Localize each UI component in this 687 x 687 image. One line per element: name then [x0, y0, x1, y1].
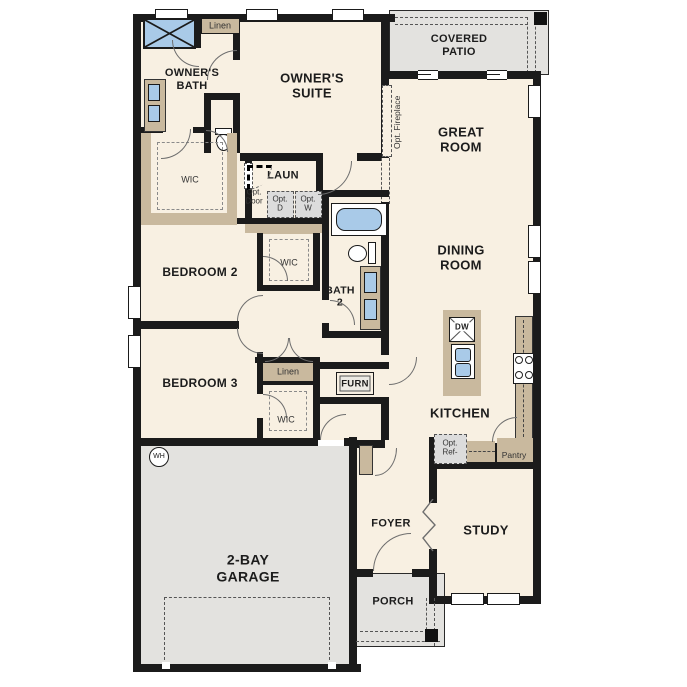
porch-label: PORCH — [372, 596, 413, 609]
linen-hall-label: Linen — [277, 367, 299, 378]
toilet-tank — [368, 242, 376, 264]
wall — [429, 549, 437, 604]
wall — [133, 321, 239, 329]
porch-post — [425, 629, 438, 642]
wall — [313, 224, 320, 291]
wall — [257, 418, 263, 440]
sliding-door-leaf — [418, 74, 431, 75]
sliding-door — [418, 70, 438, 80]
wic-owners-shelf — [227, 133, 237, 219]
vanity-sink — [364, 272, 377, 293]
bathtub — [336, 208, 382, 231]
wic-owners-shelf — [141, 133, 151, 225]
burner — [525, 371, 533, 379]
wall — [357, 153, 381, 161]
patio-roof-line-2 — [395, 24, 528, 25]
water-heater-label: WH — [153, 453, 165, 461]
counter-line — [469, 451, 495, 452]
sliding-door — [487, 70, 507, 80]
cased-opening-study — [420, 499, 440, 553]
burner — [515, 356, 523, 364]
window — [128, 286, 141, 319]
vanity-sink — [364, 299, 377, 320]
optional-opening — [381, 158, 390, 204]
wall — [349, 569, 373, 577]
wall — [313, 362, 389, 369]
garage-door — [164, 597, 330, 665]
wall — [389, 71, 418, 79]
wic-bed2-shelf — [263, 225, 313, 234]
opt-fireplace-label: Opt. Fireplace — [392, 84, 405, 160]
window — [528, 261, 541, 294]
dishwasher-label: DW — [454, 322, 470, 331]
window — [528, 85, 541, 118]
optional-fireplace — [382, 85, 392, 157]
opt-door-label: Opt. Door — [245, 188, 262, 207]
sink-basin — [455, 348, 471, 362]
pantry-label: Pantry — [502, 450, 527, 460]
coat-closet — [359, 445, 373, 475]
floor-plan: COVERED PATIO — [0, 0, 687, 687]
covered-patio-label: COVERED PATIO — [431, 33, 488, 59]
window — [451, 593, 484, 605]
wic-owners-shelf — [141, 213, 237, 225]
wall — [429, 596, 541, 604]
burner — [515, 371, 523, 379]
kitchen-label: KITCHEN — [430, 405, 490, 420]
burner — [525, 356, 533, 364]
garage-door-jamb — [328, 662, 336, 669]
linen-owners-label: Linen — [209, 21, 231, 32]
window — [246, 9, 278, 21]
garage-door-jamb — [162, 662, 170, 669]
patio-roof-line-4 — [535, 17, 536, 73]
wall — [381, 400, 389, 440]
wall — [533, 293, 541, 604]
wic-owners-label: WIC — [181, 175, 199, 186]
owners-bath-label: OWNER'S BATH — [165, 67, 219, 93]
vanity-sink — [148, 84, 160, 101]
sliding-door-leaf — [487, 74, 500, 75]
wall — [193, 127, 207, 133]
sink-basin — [455, 363, 471, 377]
wall — [133, 438, 318, 446]
window — [487, 593, 520, 605]
wall — [322, 331, 389, 338]
toilet-bowl — [348, 245, 367, 262]
wall — [438, 71, 487, 79]
furnace-label: FURN — [341, 378, 369, 389]
patio-post — [534, 12, 547, 25]
vanity-sink — [148, 105, 160, 122]
great-room-label: GREAT ROOM — [438, 125, 484, 156]
patio-roof-line-1 — [395, 17, 528, 18]
wall — [313, 362, 320, 404]
wall — [313, 397, 389, 404]
bedroom2-label: BEDROOM 2 — [162, 265, 237, 279]
laundry-label: LAUN — [267, 170, 299, 183]
bedroom3-label: BEDROOM 3 — [162, 376, 237, 390]
opt-dryer-label: Opt. D — [272, 195, 287, 214]
wic-bed2-label: WIC — [280, 258, 298, 269]
window — [332, 9, 364, 21]
wic-bed3-label: WIC — [277, 415, 295, 426]
opt-ref-label: Opt. Ref- — [442, 439, 457, 458]
study-label: STUDY — [463, 522, 509, 537]
window — [528, 225, 541, 258]
foyer-label: FOYER — [371, 518, 410, 531]
window — [128, 335, 141, 368]
dining-room-label: DINING ROOM — [437, 243, 484, 274]
wall — [533, 117, 541, 226]
owners-suite-label: OWNER'S SUITE — [280, 71, 344, 102]
wall — [349, 437, 357, 672]
patio-roof-line-3 — [527, 17, 528, 73]
wall — [257, 285, 320, 291]
opt-washer-label: Opt. W — [300, 195, 315, 214]
garage-label: 2-BAY GARAGE — [216, 551, 279, 584]
